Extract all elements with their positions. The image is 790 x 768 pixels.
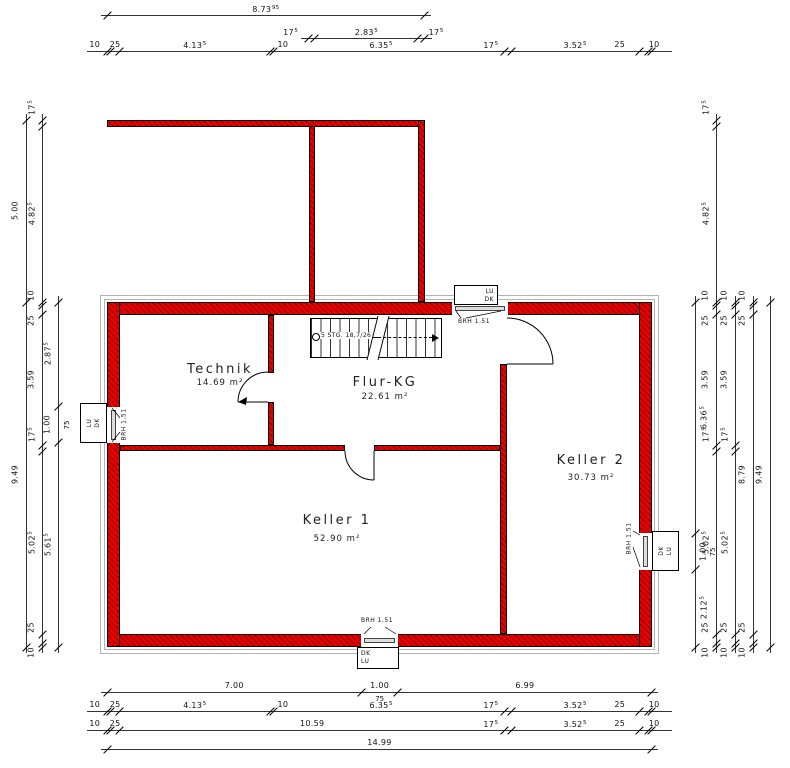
dim-line-top-detail xyxy=(87,51,672,52)
window-left-lightshaft-box: LUDK xyxy=(80,403,107,443)
dim-label: 10.59 xyxy=(288,719,336,728)
dim-line-left-detail xyxy=(42,114,43,653)
room-area-keller-1: 52.90 m² xyxy=(277,534,397,544)
dim-label: 9.49 xyxy=(11,452,20,496)
window-top-frame xyxy=(455,306,505,311)
dim-label: 25 xyxy=(27,299,36,343)
dim-label: 8.79 xyxy=(738,452,747,496)
dim-line-right-detail-2 xyxy=(735,296,736,653)
dim-label: 25 xyxy=(720,299,729,343)
wall-interior-horizontal-left xyxy=(120,445,345,451)
dim-label: 175 xyxy=(467,40,515,50)
dim-line-left-window xyxy=(58,296,59,653)
dim-label: 175 xyxy=(27,413,36,457)
dim-label: 8.7395 xyxy=(242,4,290,14)
window-bottom-lightshaft-box: DKLU xyxy=(357,647,399,669)
dim-label: 10 xyxy=(630,700,678,709)
dim-label: 175 xyxy=(701,413,710,457)
dim-label: 5.025 xyxy=(27,521,36,565)
dim-label: 10 xyxy=(738,631,747,675)
dim-label: 6.355 xyxy=(357,40,405,50)
dim-label: 4.135 xyxy=(171,700,219,710)
dim-line-top-stair xyxy=(301,38,433,39)
dim-label: 175 xyxy=(467,700,515,710)
dim-label: 2.835 xyxy=(342,27,390,37)
stair-start-circle-icon xyxy=(312,333,320,341)
dim-label: 5.00 xyxy=(11,189,20,233)
stair-walk-line-upper xyxy=(378,337,432,338)
window-left-brh-label: BRH 1.51 xyxy=(121,400,128,450)
dim-label: 175 xyxy=(701,86,710,130)
room-area-technik: 14.69 m² xyxy=(160,378,280,388)
dim-label: 3.525 xyxy=(551,700,599,710)
dim-label: 10 xyxy=(259,700,307,709)
dim-label: 3.525 xyxy=(551,719,599,729)
dim-label: 10 xyxy=(701,631,710,675)
basement-floorplan: 5 STG. 18,7/26 LUDKBRH 1.51LUDKBRH 1.51D… xyxy=(0,0,790,768)
stair-direction-arrow-icon xyxy=(432,334,439,342)
dim-label: 6.355 xyxy=(357,700,405,710)
room-label-flur-kg: Flur-KG xyxy=(305,375,465,390)
dim-label: 4.825 xyxy=(701,192,710,236)
dim-label: 10 xyxy=(630,40,678,49)
dim-label: 25 xyxy=(91,719,139,728)
window-bottom-frame xyxy=(364,638,395,643)
wall-wing-top xyxy=(107,120,425,127)
dim-label: 5.615 xyxy=(43,522,52,566)
dim-label: 4.825 xyxy=(27,192,36,236)
dim-label: 4.135 xyxy=(171,40,219,50)
room-label-technik: Technik xyxy=(140,362,300,377)
dim-label: 175 xyxy=(467,719,515,729)
window-bottom-brh-label: BRH 1.51 xyxy=(352,617,402,624)
window-right-frame xyxy=(643,536,648,567)
wall-stair-shaft-left xyxy=(309,126,315,302)
dim-line-bottom-overall xyxy=(101,749,658,750)
dim-label: 3.59 xyxy=(27,358,36,402)
wall-interior-horizontal-right xyxy=(374,445,500,451)
dim-label: 7.00 xyxy=(210,681,258,690)
stair-label: 5 STG. 18,7/26 xyxy=(320,332,372,339)
dim-label: 3.525 xyxy=(551,40,599,50)
dim-label: 25 xyxy=(701,299,710,343)
dim-line-bottom-inner xyxy=(87,730,672,731)
dim-label: 25 xyxy=(738,299,747,343)
dim-label: 5.025 xyxy=(720,520,729,564)
window-right-brh-label: BRH 1.51 xyxy=(626,514,633,564)
dim-label: 14.99 xyxy=(355,738,403,747)
wall-technik-lower xyxy=(268,402,274,445)
dim-label: 1.00 xyxy=(43,402,52,446)
dim-label: 175 xyxy=(267,27,315,37)
dim-line-right-detail-1 xyxy=(716,114,717,653)
dim-label: 1.00 xyxy=(356,681,404,690)
dim-line-bottom-detail xyxy=(87,711,672,712)
window-top-lightshaft-box: LUDK xyxy=(454,285,498,305)
dim-label: 3.59 xyxy=(701,358,710,402)
dim-line-right-window xyxy=(695,296,696,653)
dim-label: 175 xyxy=(27,86,36,130)
dim-line-top-overall xyxy=(101,15,431,16)
window-left-labels: LUDK xyxy=(86,406,102,440)
window-top-brh-label: BRH 1.51 xyxy=(449,318,499,325)
dim-label: 25 xyxy=(91,700,139,709)
room-label-keller-2: Keller 2 xyxy=(511,453,671,468)
dim-label: 10 xyxy=(720,631,729,675)
dim-label: 25 xyxy=(91,40,139,49)
wall-main-left xyxy=(107,302,120,647)
dim-label: 2.875 xyxy=(43,332,52,376)
dim-label: 175 xyxy=(412,27,460,37)
dim-label: 5.025 xyxy=(701,521,710,565)
dim-label: 10 xyxy=(27,631,36,675)
dim-label: 10 xyxy=(259,40,307,49)
window-right-lightshaft-box: DKLU xyxy=(652,531,679,571)
dim-label: 6.99 xyxy=(501,681,549,690)
dim-sublabel: 75 xyxy=(63,416,71,434)
dim-label: 9.49 xyxy=(755,452,764,496)
window-right-labels: DKLU xyxy=(658,534,674,568)
dim-line-right-overall xyxy=(770,296,771,653)
window-left-frame xyxy=(111,410,116,440)
wall-keller2 xyxy=(500,364,507,634)
room-area-flur-kg: 22.61 m² xyxy=(325,392,445,402)
dim-label: 10 xyxy=(630,719,678,728)
room-label-keller-1: Keller 1 xyxy=(257,513,417,528)
room-area-keller-2: 30.73 m² xyxy=(531,473,651,483)
dim-label: 175 xyxy=(720,413,729,457)
dim-line-bottom-openings xyxy=(101,692,658,693)
dim-label: 3.59 xyxy=(720,357,729,401)
wall-main-top xyxy=(107,302,652,315)
wall-stair-shaft-right xyxy=(418,120,425,302)
